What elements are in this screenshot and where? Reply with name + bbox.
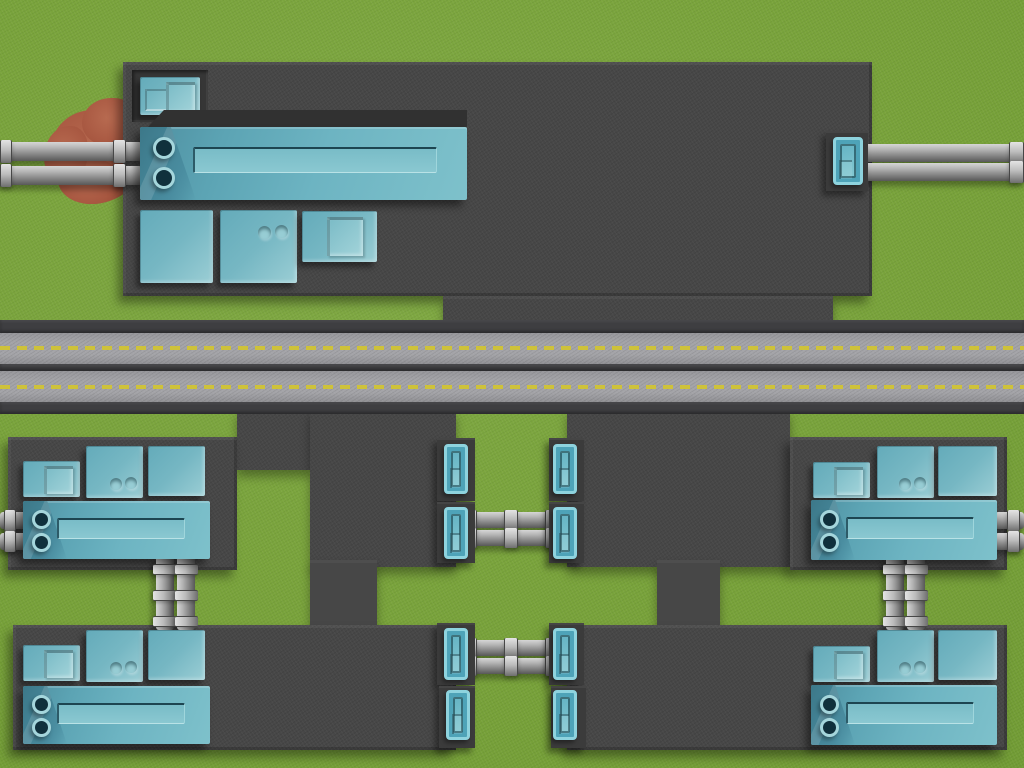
intake-port	[32, 533, 51, 552]
game-scene-canvas	[0, 0, 1024, 768]
console-panel-raised	[834, 651, 863, 679]
pipeline-valve[interactable]	[444, 507, 468, 559]
storage-box[interactable]	[938, 446, 997, 496]
vent-dot	[110, 478, 122, 490]
outlet-pipe-upper	[860, 144, 1024, 162]
road-upper-edge	[0, 320, 1024, 333]
intake-port	[153, 137, 175, 159]
pipe-collar	[0, 140, 12, 163]
pipeline-valve[interactable]	[446, 690, 470, 740]
intake-port	[32, 510, 51, 529]
vent-dot	[125, 477, 137, 489]
pipe-collar	[175, 616, 198, 627]
intake-port	[820, 695, 839, 714]
pipeline-valve[interactable]	[553, 690, 577, 740]
vent-dot	[914, 477, 926, 489]
road-dash-south	[0, 385, 1024, 389]
vent-dot	[899, 662, 911, 674]
console-panel-raised	[166, 82, 195, 113]
vent-dot	[275, 225, 288, 238]
pipe-collar	[175, 590, 198, 601]
hopper-box-inner	[327, 217, 363, 256]
left-bridge-platform	[237, 410, 312, 470]
intake-port	[820, 718, 839, 737]
pipe-collar	[113, 140, 126, 163]
machine-shadow-band	[148, 110, 467, 127]
pipe-collar	[905, 564, 928, 575]
intake-port	[32, 695, 51, 714]
pipe-collar	[504, 656, 518, 676]
vent-box[interactable]	[877, 446, 934, 498]
outlet-pipe-lower	[860, 163, 1024, 181]
center-right-connector	[657, 560, 720, 630]
pipe-collar	[1007, 531, 1020, 552]
pipe-collar	[153, 590, 176, 601]
vent-dot	[258, 226, 271, 239]
pipe-collar	[905, 590, 928, 601]
pipe-collar	[4, 531, 16, 552]
center-right-platform	[567, 410, 790, 567]
pipe-collar	[504, 528, 518, 548]
pipe-collar	[905, 616, 928, 627]
storage-box[interactable]	[148, 446, 205, 496]
pipe-collar	[883, 616, 906, 627]
intake-port	[153, 167, 175, 189]
pipeline-valve[interactable]	[553, 444, 577, 494]
vent-box[interactable]	[86, 630, 143, 682]
processor-slot	[846, 702, 974, 724]
center-left-platform	[310, 410, 456, 567]
vent-dot	[914, 661, 926, 673]
intake-port	[820, 533, 839, 552]
pipe-collar	[113, 164, 126, 187]
vent-box[interactable]	[220, 210, 297, 283]
pipe-collar	[153, 616, 176, 627]
vent-dot	[125, 661, 137, 673]
pipe-collar	[504, 510, 518, 530]
console-panel-raised	[44, 466, 73, 494]
pipe-collar	[1009, 161, 1024, 183]
pipeline-valve[interactable]	[444, 628, 468, 680]
storage-box[interactable]	[148, 630, 205, 680]
processor-slot	[57, 518, 185, 539]
road-dash-north	[0, 346, 1024, 350]
vent-dot	[110, 662, 122, 674]
pipe-collar	[175, 564, 198, 575]
center-left-connector	[310, 560, 377, 630]
processor-slot	[57, 703, 185, 724]
console-panel-raised	[834, 467, 863, 495]
processor-slot	[846, 517, 974, 539]
storage-box[interactable]	[140, 210, 213, 283]
pipe-collar	[883, 590, 906, 601]
pipe-collar	[153, 564, 176, 575]
intake-port	[32, 718, 51, 737]
pipeline-valve[interactable]	[444, 444, 468, 494]
storage-box[interactable]	[938, 630, 997, 680]
vent-dot	[899, 478, 911, 490]
pipe-collar	[1007, 510, 1020, 531]
intake-port	[820, 510, 839, 529]
road-lower-edge	[0, 402, 1024, 414]
console-panel-raised	[44, 650, 73, 678]
pipe-collar	[4, 510, 16, 531]
pipe-collar	[0, 164, 12, 187]
road-median	[0, 364, 1024, 371]
pipeline-valve[interactable]	[553, 628, 577, 680]
pipe-collar	[883, 564, 906, 575]
pipeline-valve[interactable]	[553, 507, 577, 559]
processor-slot	[193, 147, 437, 173]
vent-box[interactable]	[877, 630, 934, 682]
pipeline-valve[interactable]	[833, 137, 863, 185]
pipe-collar	[504, 638, 518, 658]
vent-box[interactable]	[86, 446, 143, 498]
